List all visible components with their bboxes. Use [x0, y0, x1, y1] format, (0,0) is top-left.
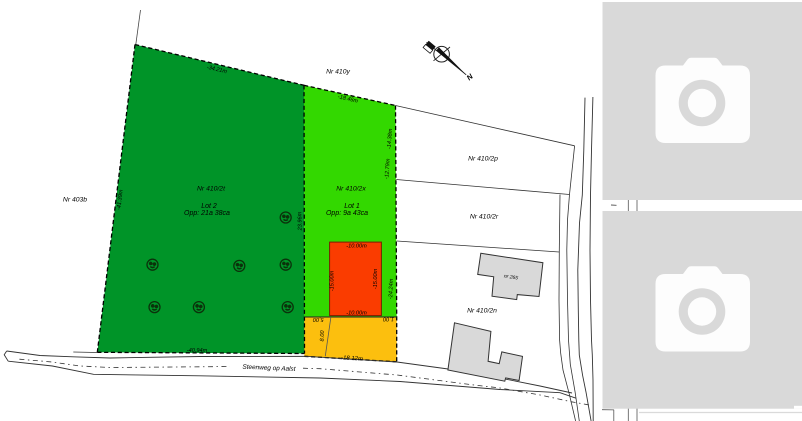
svg-text:-10.00m: -10.00m: [346, 311, 367, 317]
svg-text:Nr 410/2t: Nr 410/2t: [197, 186, 226, 193]
svg-text:-10.00m: -10.00m: [346, 244, 367, 250]
svg-text:-24.24m: -24.24m: [388, 278, 395, 299]
svg-text:Lot 1: Lot 1: [344, 203, 360, 210]
svg-text:-40.94m: -40.94m: [187, 348, 208, 354]
svg-text:Nr 410y: Nr 410y: [326, 69, 350, 76]
svg-text:Nr 410/2x: Nr 410/2x: [336, 186, 366, 193]
svg-text:8.00: 8.00: [320, 330, 326, 342]
svg-text:Nr 410/2p: Nr 410/2p: [468, 156, 498, 163]
svg-text:Nr 410/2r: Nr 410/2r: [470, 214, 499, 221]
svg-text:Lot 2: Lot 2: [201, 203, 217, 210]
svg-text:Opp: 9a 43ca: Opp: 9a 43ca: [326, 210, 368, 217]
svg-text:-15.00m: -15.00m: [373, 268, 379, 289]
svg-text:Nr 403b: Nr 403b: [63, 197, 87, 204]
svg-text:Opp: 21a 38ca: Opp: 21a 38ca: [184, 210, 230, 217]
svg-text:Nr 410/2n: Nr 410/2n: [467, 308, 497, 315]
svg-text:23.96m: 23.96m: [297, 211, 303, 231]
svg-text:-15.00m: -15.00m: [330, 270, 336, 291]
svg-text:5,00: 5,00: [312, 316, 324, 322]
svg-text:1,00: 1,00: [382, 316, 394, 322]
